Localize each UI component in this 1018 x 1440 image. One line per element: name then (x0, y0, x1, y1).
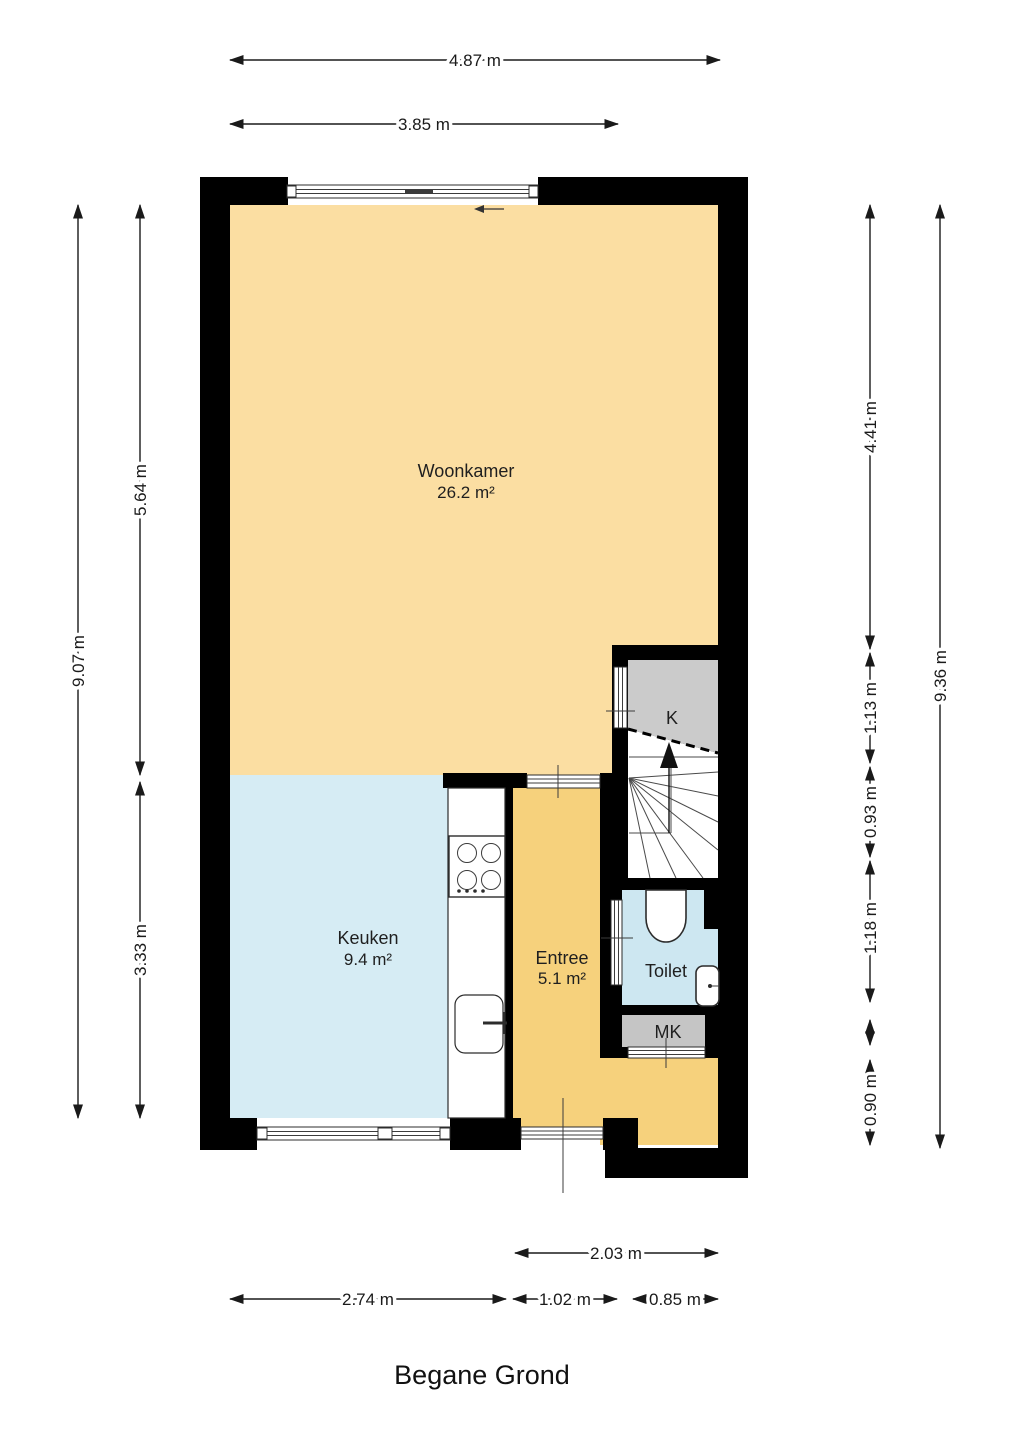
dim-bottom-entree-total: 2.03 m (590, 1244, 642, 1263)
dim-bottom-door: 1.02 m (539, 1290, 591, 1309)
dim-right-woonkamer: 4.41 m (861, 401, 880, 453)
floorplan-page: Woonkamer 26.2 m² Keuken 9.4 m² Entree 5… (0, 0, 1018, 1440)
dimensions-bottom: 2.03 m 2.74 m 1.02 m 0.85 m (230, 1244, 718, 1309)
floor-title: Begane Grond (394, 1360, 570, 1390)
wall-door-pier (603, 1118, 638, 1150)
wall-right (718, 177, 748, 1178)
dimensions-left: 9.07 m 5.64 m 3.33 m (69, 205, 150, 1118)
wall-bottom-corner (200, 1118, 257, 1150)
dim-top-inner: 3.85 m (398, 115, 450, 134)
dim-left-lower: 3.33 m (131, 924, 150, 976)
dimensions-top: 4.87 m 3.85 m (230, 51, 720, 134)
dim-right-total: 9.36 m (931, 650, 950, 702)
dim-right-kast: 1.13 m (861, 682, 880, 734)
label-entree-area: 5.1 m² (538, 969, 587, 988)
label-keuken-area: 9.4 m² (344, 950, 393, 969)
wall-counter-head (443, 773, 527, 788)
dim-bottom-mk: 0.85 m (649, 1290, 701, 1309)
floorplan-drawing: Woonkamer 26.2 m² Keuken 9.4 m² Entree 5… (0, 0, 1018, 1440)
front-door-threshold (521, 1127, 603, 1139)
dim-top-outer: 4.87 m (449, 51, 501, 70)
dim-right-lower: 0.90 m (861, 1074, 880, 1126)
wall-left (200, 177, 230, 1150)
kitchen-window-endcap (440, 1128, 450, 1139)
sliding-panel (405, 190, 433, 194)
wall-bottom-pier (450, 1118, 521, 1150)
dim-right-toilet: 1.18 m (861, 902, 880, 954)
label-woonkamer-area: 26.2 m² (437, 483, 495, 502)
dim-left-total: 9.07 m (69, 635, 88, 687)
kitchen-counter (448, 788, 507, 1118)
top-window-endcap (529, 186, 538, 197)
wall-top-right (538, 177, 748, 205)
top-window-endcap (287, 186, 296, 197)
woonkamer-entree-opening (527, 775, 600, 788)
toilet-door-opening (611, 900, 622, 985)
kast-opening (614, 667, 627, 728)
label-toilet: Toilet (645, 961, 687, 981)
dim-bottom-keuken: 2.74 m (342, 1290, 394, 1309)
dim-left-upper: 5.64 m (131, 464, 150, 516)
dim-right-stairs: 0.93 m (861, 786, 880, 838)
label-woonkamer: Woonkamer (418, 461, 515, 481)
label-meterkast: MK (655, 1022, 682, 1042)
label-entree: Entree (535, 948, 588, 968)
kitchen-window-endcap (257, 1128, 267, 1139)
wall-counter-side (505, 775, 513, 1118)
label-kast: K (666, 708, 678, 728)
kitchen-window-mullion (378, 1128, 392, 1139)
wall-bottom-right (605, 1148, 748, 1178)
toilet-bowl (646, 890, 686, 942)
dimensions-right: 4.41 m 1.13 m 0.93 m 1.18 m 0.90 m 9.36 … (861, 205, 950, 1148)
label-keuken: Keuken (337, 928, 398, 948)
kitchen-window (257, 1127, 450, 1140)
